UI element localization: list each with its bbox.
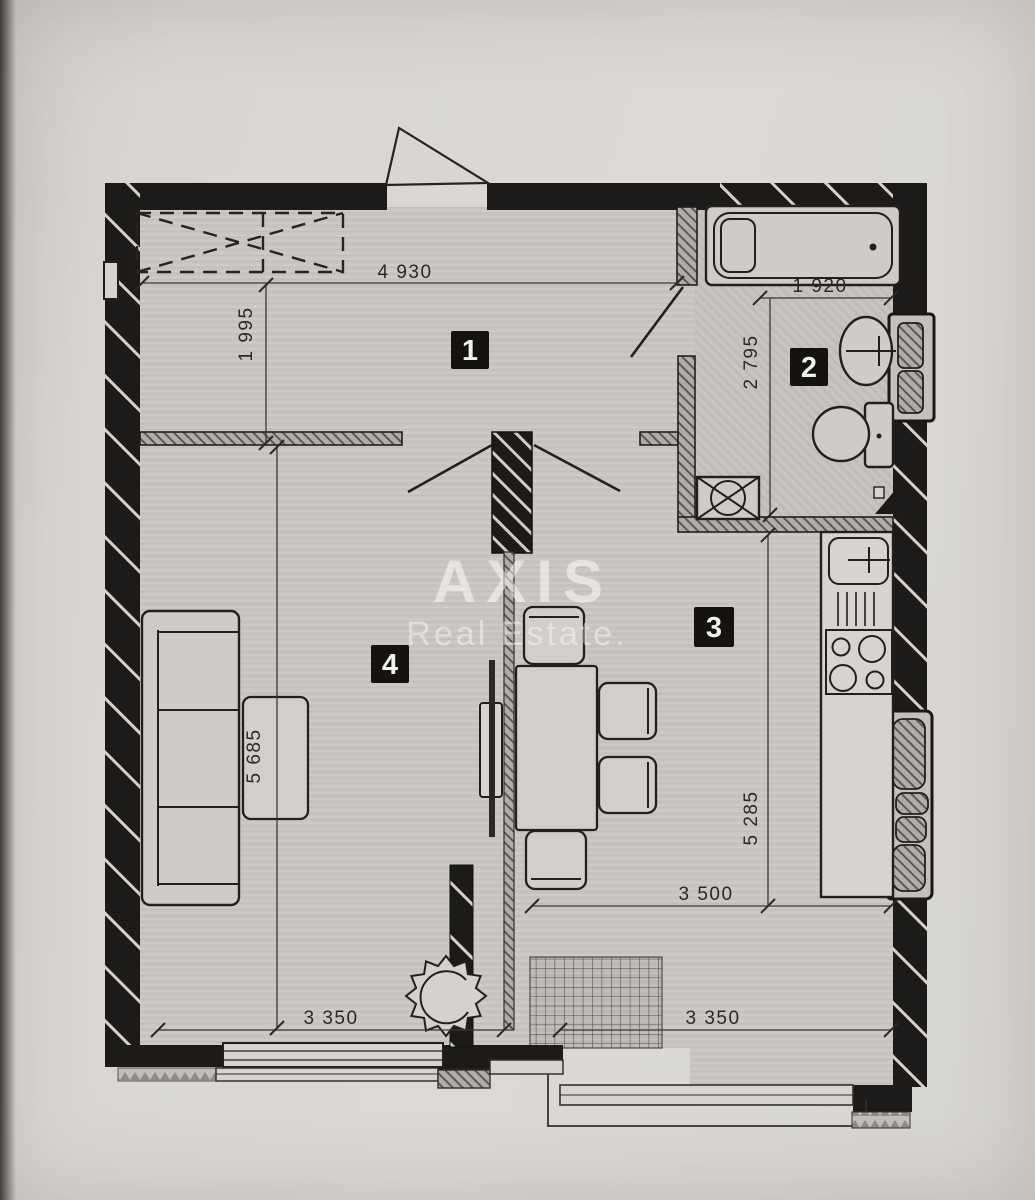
bathtub — [706, 206, 900, 285]
room-label-3: 3 — [694, 607, 734, 647]
dim-living-depth: 5 685 — [244, 728, 265, 783]
dim-living-width: 3 350 — [303, 1008, 358, 1029]
room-label-2: 2 — [790, 348, 828, 386]
dim-kitchen-width-lower: 3 350 — [685, 1008, 740, 1029]
svg-text:1: 1 — [462, 335, 478, 367]
rug-grid — [530, 957, 662, 1048]
chair-right-2 — [599, 757, 656, 813]
toilet — [813, 403, 893, 467]
kitchen-counter — [821, 532, 893, 897]
photo-edge-shadow — [0, 0, 16, 1200]
washing-machine — [697, 477, 759, 519]
floor-plan-photo: 4 930 1 995 1 920 2 795 5 285 3 500 5 68… — [0, 0, 1035, 1200]
dining-table — [516, 666, 597, 830]
watermark-title: AXIS — [433, 548, 613, 615]
sofa — [142, 611, 239, 905]
chair-bottom — [526, 831, 586, 889]
svg-text:2: 2 — [801, 352, 817, 384]
bathroom-window — [889, 314, 934, 421]
dim-hall-width: 4 930 — [377, 262, 432, 283]
dim-kitchen-depth: 5 285 — [741, 790, 762, 845]
svg-text:4: 4 — [382, 649, 398, 681]
dim-hall-depth: 1 995 — [236, 306, 257, 361]
watermark: AXIS Real Estate. — [406, 548, 627, 653]
room-label-1: 1 — [451, 331, 489, 369]
svg-text:3: 3 — [706, 612, 722, 644]
dim-bath-width: 1 920 — [792, 276, 847, 297]
floor-plan-drawing: 4 930 1 995 1 920 2 795 5 285 3 500 5 68… — [0, 0, 1035, 1200]
watermark-subtitle: Real Estate. — [406, 615, 627, 653]
dim-bath-depth: 2 795 — [741, 334, 762, 389]
chair-right-1 — [599, 683, 656, 739]
room-label-4: 4 — [371, 645, 409, 683]
dim-kitchen-width: 3 500 — [678, 884, 733, 905]
entrance-door — [386, 128, 488, 185]
